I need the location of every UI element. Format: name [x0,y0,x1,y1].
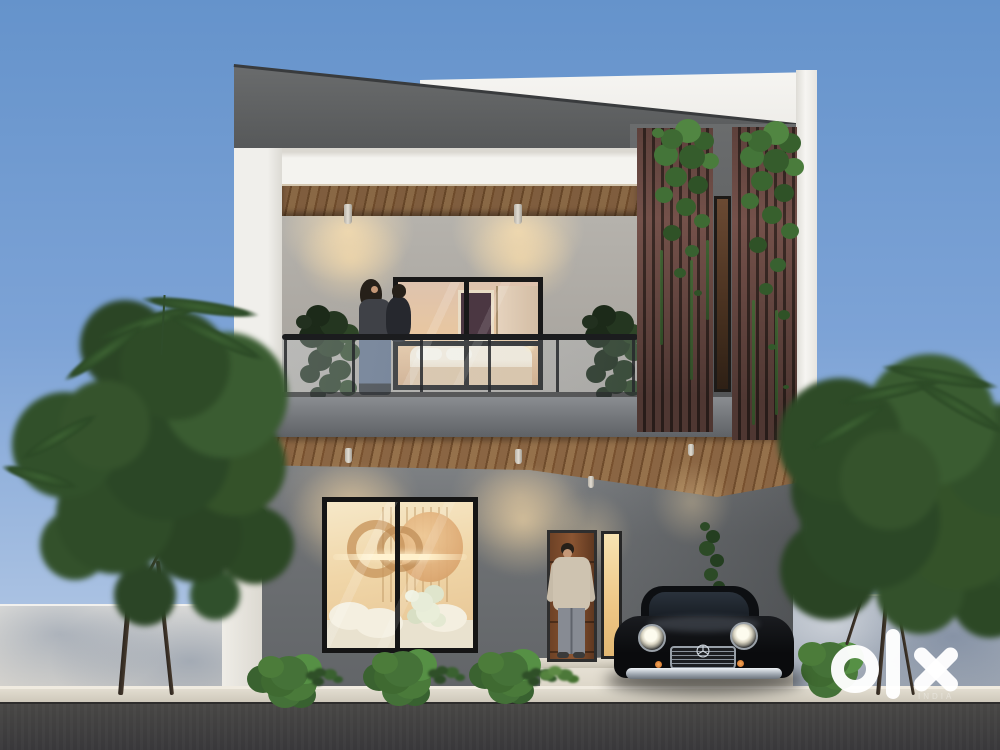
balcony-fascia-band [250,397,806,439]
balcony-header-band [234,148,638,188]
vine-strand [706,240,709,320]
vine-strand [690,260,693,380]
mercedes-star-icon [696,644,710,658]
glass-reflection [327,502,473,648]
carport-light-glow [652,460,732,545]
vine-strand [660,250,663,345]
olx-logo-letter-l [886,629,900,699]
carport-downlight [588,476,594,488]
car-chrome-bumper [626,668,782,679]
railing-handrail [282,334,638,340]
railing-post [284,340,287,392]
front-bush [258,656,284,678]
railing-post [632,340,635,392]
man-pants [558,608,585,654]
grass-tuft [314,668,326,677]
railing-post [352,340,355,392]
ivy-cluster-left [652,128,664,138]
olx-logo-letter-o [831,645,879,693]
man-shirt [553,557,590,611]
railing-post [488,340,491,392]
front-bush [478,652,504,674]
vine-strand [775,310,778,415]
balcony-plant-left [296,315,312,329]
front-bush [372,652,398,674]
child-head [392,284,406,298]
man-shoe [557,652,569,658]
car-indicator-right [737,660,744,667]
living-room-window [322,497,478,653]
grass-tuft [530,668,542,677]
vine-strand [752,300,755,425]
wood-slat-screen-left [637,128,713,432]
car-indicator-left [655,661,662,668]
downlight [345,448,352,463]
pendant-light-left [344,204,352,224]
carport-downlight [688,444,694,456]
agave-plant [548,666,562,676]
pendant-light-right [514,204,522,224]
downlight [515,449,522,464]
wood-slat-screen-right [732,127,797,440]
bush-right-of-car [798,642,826,666]
man-shoe [573,652,585,658]
woman-face [371,286,378,293]
railing-post [420,340,423,392]
balcony-plant-right [582,315,598,329]
house-render-scene: INDIA [0,0,1000,750]
tree-canopy-right [840,430,940,530]
asphalt-road [0,702,1000,750]
railing-post [556,340,559,392]
car-headlight-left [638,624,666,652]
climbing-vine [700,522,710,531]
balcony-light-glow-left [296,212,406,304]
olx-watermark-sublabel: INDIA [918,692,954,701]
planter-wall [222,560,262,690]
grass-tuft [436,666,448,675]
right-white-fin [796,70,817,442]
glass-railing [282,335,638,397]
ivy-cluster-right [740,132,752,142]
flowering-shrub [222,470,236,482]
narrow-stair-window [714,196,731,392]
